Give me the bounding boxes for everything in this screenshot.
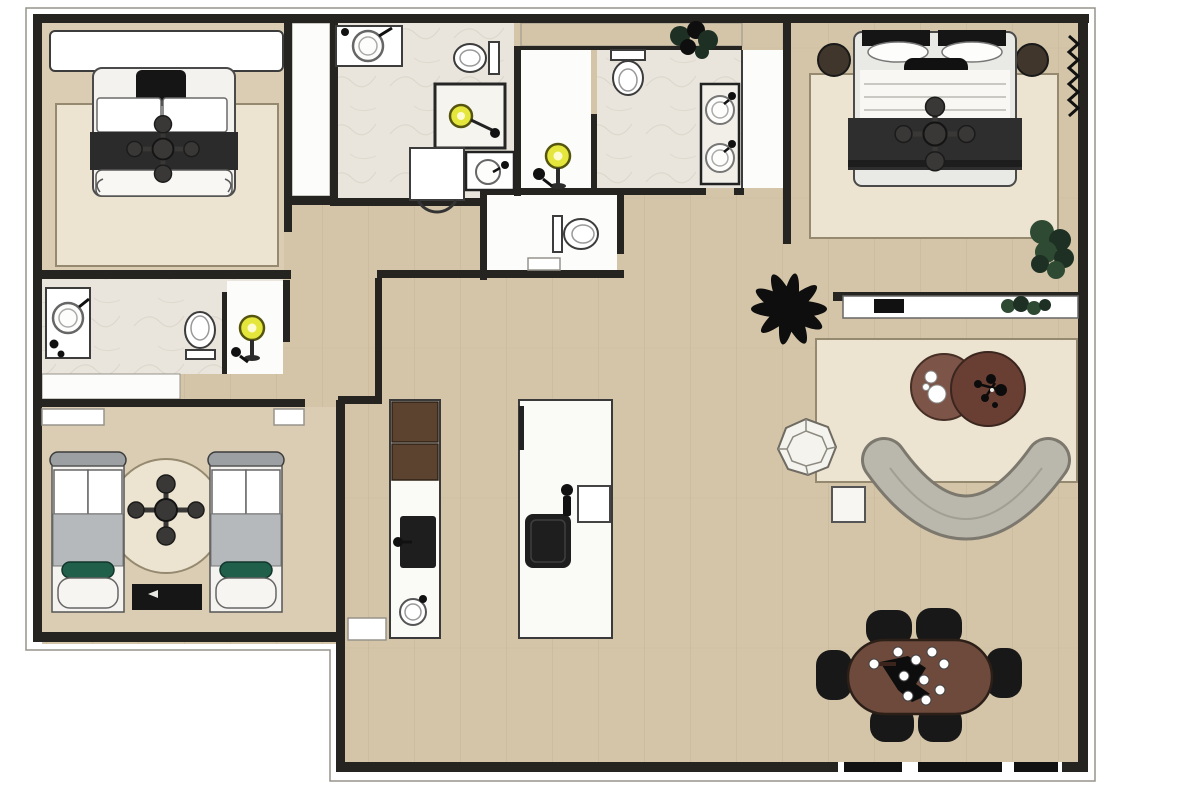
toilet-tank xyxy=(186,350,215,359)
toilet-tank xyxy=(489,42,499,74)
bulb xyxy=(919,675,929,685)
island-faucet-body xyxy=(563,496,571,516)
hall-closet xyxy=(292,23,330,196)
window-wall xyxy=(838,762,1062,772)
shower-enclosure xyxy=(435,84,505,148)
toilet xyxy=(454,42,499,74)
faucet-icon xyxy=(501,161,509,169)
tv-icon xyxy=(874,299,904,313)
leaf xyxy=(1031,255,1049,273)
basin xyxy=(353,31,383,61)
basin-top xyxy=(706,96,734,124)
shower-head-center xyxy=(248,324,257,333)
soap-dish-icon xyxy=(58,351,65,358)
window-panel xyxy=(844,762,902,772)
wall-outer-step xyxy=(336,632,345,772)
wardrobe xyxy=(50,31,283,71)
wall-shower-bath-divider xyxy=(591,114,597,192)
duvet xyxy=(216,578,276,608)
blanket xyxy=(53,514,123,566)
shower-head-center xyxy=(457,112,465,120)
leaf xyxy=(695,45,709,59)
twin-bed-left xyxy=(50,452,126,612)
basin xyxy=(53,303,83,333)
bench-body xyxy=(132,584,202,610)
leaf xyxy=(1013,296,1029,312)
void-closet-area xyxy=(742,50,783,188)
twig-dot xyxy=(990,388,994,392)
bulb xyxy=(935,685,945,695)
toilet-bowl xyxy=(613,61,643,95)
leaf xyxy=(1039,299,1051,311)
wall-kidsbath-right xyxy=(283,280,290,342)
pillow xyxy=(88,470,122,514)
toilet-bowl xyxy=(454,44,486,72)
tv-console xyxy=(843,296,1078,318)
island-handle xyxy=(519,406,524,450)
wardrobe-right xyxy=(274,409,304,425)
wall-hall-bottom xyxy=(377,270,483,278)
counter-run xyxy=(390,400,440,638)
coffee-table-pair xyxy=(911,352,1025,426)
coffee-table-right xyxy=(951,352,1025,426)
decor-ball xyxy=(928,385,946,403)
faucet-icon xyxy=(419,595,427,603)
window-panel xyxy=(1014,762,1058,772)
wall-wc-left xyxy=(480,195,487,280)
wall-wc-bottom xyxy=(480,270,624,278)
outside-area xyxy=(42,644,336,762)
double-vanity xyxy=(701,84,739,184)
shower-base xyxy=(550,183,566,189)
leaf xyxy=(1001,299,1015,313)
tall-cabinet-bottom xyxy=(392,444,438,480)
toilet xyxy=(553,216,598,252)
bolster-pillow xyxy=(220,562,272,578)
wall-master-left xyxy=(783,14,791,244)
side-table xyxy=(832,487,865,522)
wardrobe-left xyxy=(42,409,104,425)
washer-body xyxy=(410,148,464,200)
plant-center xyxy=(778,298,800,320)
shelf xyxy=(528,258,560,270)
hand-shower-icon xyxy=(533,168,545,180)
soap-dish-icon xyxy=(50,340,59,349)
pillow xyxy=(54,470,88,514)
shower-head-center xyxy=(554,152,563,161)
island-faucet-icon xyxy=(561,484,573,496)
nightstand-left xyxy=(818,44,850,76)
blanket xyxy=(211,514,281,566)
duvet xyxy=(58,578,118,608)
wall-outer-left xyxy=(33,14,42,642)
wall-outer-bottom-left xyxy=(33,632,345,642)
bulb xyxy=(899,671,909,681)
wall-bedroom1-bottom xyxy=(33,270,291,279)
wall-masterbath-bottom-stub xyxy=(734,188,744,195)
window-panel xyxy=(918,762,1002,772)
wall-outer-top xyxy=(33,14,1089,23)
faceted-armchair xyxy=(778,419,836,475)
round-sink xyxy=(400,599,426,625)
leaf xyxy=(1027,301,1041,315)
wall-kids-top xyxy=(33,399,305,407)
chair-shell xyxy=(778,419,836,475)
floor-plan-svg xyxy=(0,0,1200,811)
decor-ball xyxy=(923,384,930,391)
wall-kidsbath-divider xyxy=(222,292,227,374)
toilet-bowl xyxy=(564,219,598,249)
bulb xyxy=(939,659,949,669)
service-box xyxy=(348,618,386,640)
twig xyxy=(986,374,996,384)
wall-outer-right xyxy=(1078,14,1088,772)
twig xyxy=(992,402,998,408)
pillow xyxy=(246,470,280,514)
leaf xyxy=(1047,261,1065,279)
toilet xyxy=(611,50,645,95)
bulb xyxy=(927,647,937,657)
bulb xyxy=(869,659,879,669)
basin-bottom xyxy=(706,144,734,172)
bulb xyxy=(921,695,931,705)
faucet-icon xyxy=(728,140,736,148)
toilet xyxy=(185,312,215,359)
wall-vestibule-right xyxy=(375,278,382,400)
media-bench xyxy=(132,584,202,610)
soap-dish-icon xyxy=(341,28,349,36)
leaf xyxy=(680,39,696,55)
toilet-tank xyxy=(611,50,645,60)
floor-plan xyxy=(0,0,1200,811)
bulb xyxy=(893,647,903,657)
island-sink xyxy=(578,486,610,522)
bulb xyxy=(911,655,921,665)
wall-wc-right xyxy=(617,195,624,254)
vanity-sink xyxy=(466,152,514,190)
tall-cabinet-top xyxy=(392,402,438,442)
faucet-icon xyxy=(393,537,403,547)
basin xyxy=(476,160,500,184)
corner-sink xyxy=(336,26,402,66)
kids-closet xyxy=(42,374,180,399)
toilet-bowl xyxy=(185,312,215,348)
pillow xyxy=(212,470,246,514)
faucet-icon xyxy=(728,92,736,100)
sink xyxy=(46,288,90,358)
bolster-pillow xyxy=(62,562,114,578)
decor-ball xyxy=(925,371,937,383)
bulb xyxy=(903,691,913,701)
pillow-right xyxy=(163,98,227,132)
toilet-tank xyxy=(553,216,562,252)
pillow-left xyxy=(97,98,161,132)
wall-kids-right xyxy=(336,400,345,636)
hand-shower-icon xyxy=(231,347,241,357)
island xyxy=(519,400,612,638)
twin-bed-right xyxy=(208,452,284,612)
dining-chair xyxy=(816,650,852,700)
hand-shower-icon xyxy=(490,128,500,138)
nightstand-right xyxy=(1016,44,1048,76)
